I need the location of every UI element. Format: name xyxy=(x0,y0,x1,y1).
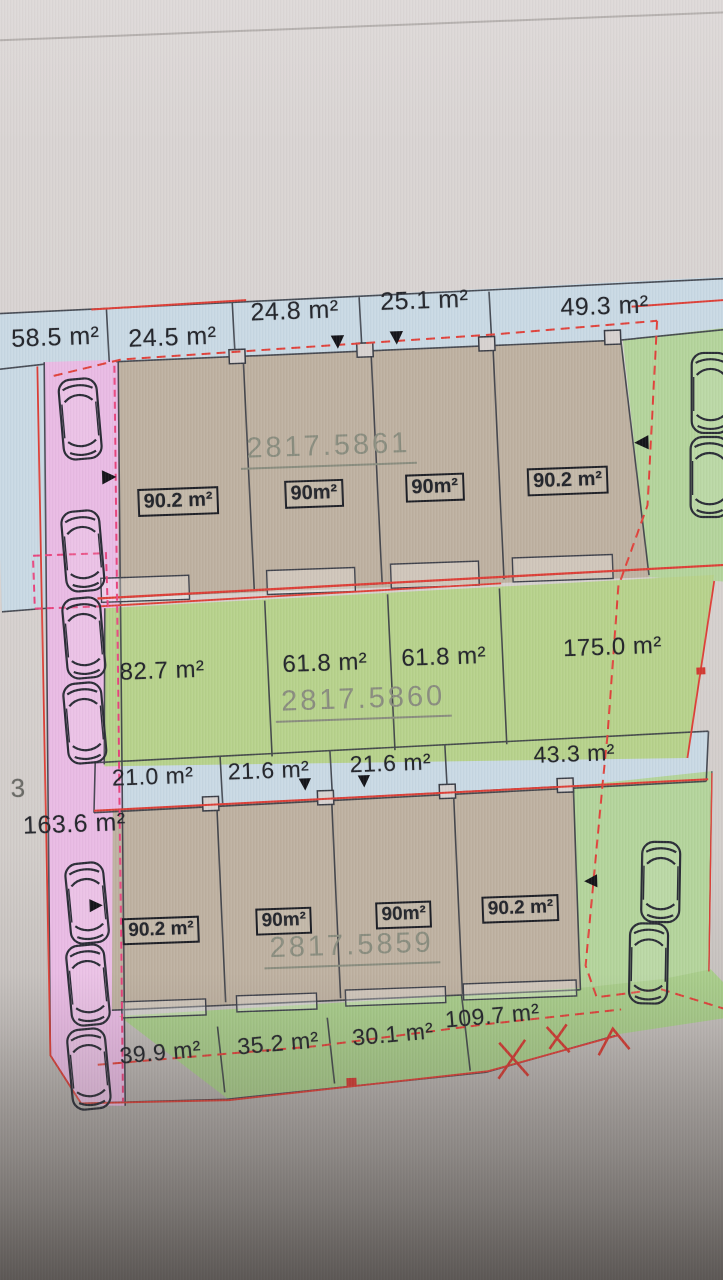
access-triangle-left-icon: ◄ xyxy=(579,867,602,894)
access-triangle-down-icon: ▼ xyxy=(326,327,350,355)
plot-area-label: 90m² xyxy=(405,473,465,503)
plot-area-label: 90m² xyxy=(375,900,432,929)
front-area-label: 58.5 m² xyxy=(11,322,100,354)
parcel-number: 2817.5861 xyxy=(240,427,417,470)
parcel-number: 2817.5860 xyxy=(275,680,452,723)
screen-edge-line xyxy=(0,9,723,42)
plot-area-label: 90.2 m² xyxy=(122,916,200,946)
garden-area-label: 175.0 m² xyxy=(563,632,663,663)
access-triangle-left-icon: ◄ xyxy=(629,428,654,457)
partial-digit-label: 3 xyxy=(10,773,26,805)
car-icon xyxy=(65,943,110,1026)
car-icon xyxy=(691,437,723,517)
front-area-label: 43.3 m² xyxy=(533,739,615,769)
garden-area-label: 82.7 m² xyxy=(119,656,205,687)
front-area-label: 25.1 m² xyxy=(380,285,469,317)
car-icon xyxy=(66,1027,111,1110)
front-area-label: 24.5 m² xyxy=(128,322,217,354)
front-area-label: 49.3 m² xyxy=(560,291,649,323)
car-icon xyxy=(629,923,668,1004)
plot-area-label: 90.2 m² xyxy=(481,894,559,924)
access-triangle-down-icon: ▼ xyxy=(385,323,409,351)
side-area-label: 163.6 m² xyxy=(23,808,127,841)
front-area-label: 24.8 m² xyxy=(250,295,339,327)
plot-area-label: 90.2 m² xyxy=(527,466,609,497)
plot-area-label: 90.2 m² xyxy=(137,486,219,517)
car-icon xyxy=(60,509,105,592)
access-triangle-down-icon: ▼ xyxy=(294,772,316,797)
car-icon xyxy=(62,681,107,764)
front-area-label: 21.0 m² xyxy=(112,762,194,792)
car-icon xyxy=(692,353,723,433)
car-icon xyxy=(61,596,106,679)
car-icon xyxy=(58,377,103,460)
parcel-number: 2817.5859 xyxy=(263,926,440,969)
site-plan-photo: 58.5 m² 24.5 m² 24.8 m² 25.1 m² 49.3 m² … xyxy=(0,0,723,1280)
access-triangle-down-icon: ▼ xyxy=(353,769,375,794)
access-triangle-right-icon: ► xyxy=(97,463,122,492)
car-icon xyxy=(641,842,680,923)
plot-area-label: 90m² xyxy=(284,479,344,509)
garden-area-label: 61.8 m² xyxy=(282,648,368,679)
access-triangle-right-icon: ► xyxy=(85,891,108,918)
garden-area-label: 61.8 m² xyxy=(401,642,487,673)
site-plan: 58.5 m² 24.5 m² 24.8 m² 25.1 m² 49.3 m² … xyxy=(0,274,723,1126)
